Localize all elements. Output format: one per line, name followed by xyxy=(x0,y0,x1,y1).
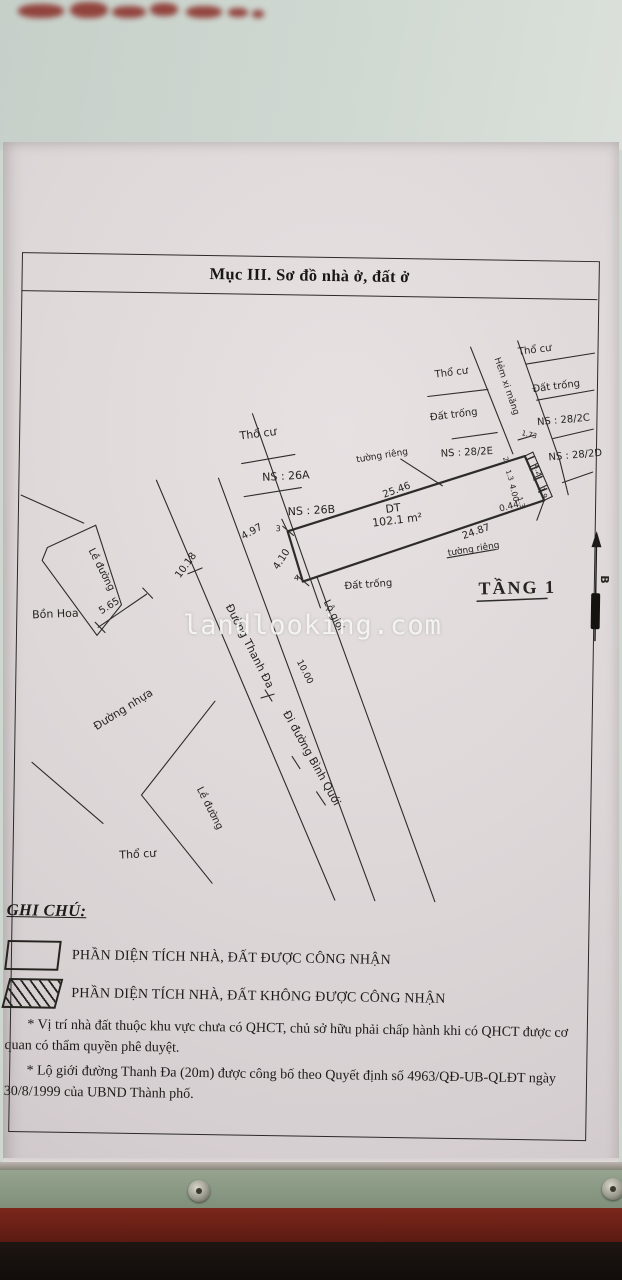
red-mark xyxy=(186,6,222,18)
legend-item-recognized: PHẦN DIỆN TÍCH NHÀ, ĐẤT ĐƯỢC CÔNG NHẬN xyxy=(6,940,592,979)
map-label-hem-xi-mang: Hẻm xi măng xyxy=(492,356,522,417)
map-label-tang-1: TẦNG 1 xyxy=(478,576,556,598)
map-label-le-duong-1: Lề đường xyxy=(86,546,118,593)
map-label-tuong-rieng-2: tường riêng xyxy=(447,540,500,559)
note-lo-gioi: * Lộ giới đường Thanh Đa (20m) được công… xyxy=(4,1060,591,1111)
map-label-dim-1-3a: 1.3 xyxy=(504,469,515,482)
map-label-le-duong-2: Lề đường xyxy=(194,785,226,832)
frame-red-ledge xyxy=(0,1208,622,1244)
map-label-dim-4-97: 4.97 xyxy=(240,522,265,542)
map-label-tuong-rieng-1: tường riêng xyxy=(355,446,408,465)
red-mark xyxy=(252,10,264,18)
notes: * Vị trí nhà đất thuộc khu vực chưa có Q… xyxy=(4,1014,591,1111)
photo-background-bottom xyxy=(0,1242,622,1280)
screw-icon xyxy=(188,1180,210,1202)
map-label-tho-cu-sw: Thổ cư xyxy=(118,847,158,862)
map-label-dat-trong-mid: Đất trống xyxy=(344,577,393,592)
map-label-tick-3: 3 xyxy=(276,524,281,533)
map-labels: Thổ cưNS : 26ANS : 26Btường riêng25.46DT… xyxy=(28,333,615,870)
screw-icon xyxy=(602,1178,622,1200)
map-label-dim-10-00: 10.00 xyxy=(294,658,315,686)
note-qhct: * Vị trí nhà đất thuộc khu vực chưa có Q… xyxy=(4,1014,591,1065)
legend-item-not-recognized: PHẦN DIỆN TÍCH NHÀ, ĐẤT KHÔNG ĐƯỢC CÔNG … xyxy=(5,978,591,1017)
map-label-dat-trong-ne: Đất trống xyxy=(532,377,581,395)
map-label-dim-10-18: 10.18 xyxy=(173,551,199,581)
map-label-dat-trong-alley-left: Đất trống xyxy=(429,406,478,424)
north-arrow-icon xyxy=(590,531,602,641)
red-mark xyxy=(112,6,146,18)
map-label-ns-26b: NS : 26B xyxy=(287,503,335,519)
map-label-ns-28-2c: NS : 28/2C xyxy=(537,413,591,429)
legend-section: GHI CHÚ: PHẦN DIỆN TÍCH NHÀ, ĐẤT ĐƯỢC CÔ… xyxy=(4,900,593,1115)
map-label-dim-0-44: 0.44 xyxy=(498,500,520,515)
map-label-dim-4-10: 4.10 xyxy=(271,547,292,572)
map-label-north-b: B xyxy=(598,575,611,584)
hatched-swatch xyxy=(1,978,63,1009)
document-sheet: Mục III. Sơ đồ nhà ở, đất ở xyxy=(3,142,619,1172)
map-label-area: 102.1 m² xyxy=(371,511,422,530)
map-label-tho-cu-upper: Thổ cư xyxy=(238,425,278,443)
frame-green-strip xyxy=(0,1170,622,1210)
map-label-duong-nhua: Đường nhựa xyxy=(91,686,155,733)
map-label-bon-hoa: Bồn Hoa xyxy=(32,607,79,622)
sheet-content: Mục III. Sơ đồ nhà ở, đất ở xyxy=(0,142,621,1182)
blank-swatch xyxy=(4,940,62,971)
red-mark xyxy=(150,3,178,16)
red-mark xyxy=(228,8,248,17)
map-label-tick-4: 4 xyxy=(294,573,299,582)
red-mark xyxy=(18,4,64,18)
map-label-tho-cu-ne: Thổ cư xyxy=(516,341,553,358)
photo-background-top xyxy=(0,0,622,150)
red-mark xyxy=(70,2,108,18)
map-label-dim-24-87: 24.87 xyxy=(461,522,492,542)
map-label-ns-28-2e: NS : 28/2E xyxy=(440,446,493,460)
photo-of-land-document: Mục III. Sơ đồ nhà ở, đất ở xyxy=(0,0,622,1280)
watermark: landlooking.com xyxy=(183,610,442,641)
map-label-ns-26a: NS : 26A xyxy=(262,468,311,484)
map-label-tho-cu-alley-left: Thổ cư xyxy=(433,363,470,380)
